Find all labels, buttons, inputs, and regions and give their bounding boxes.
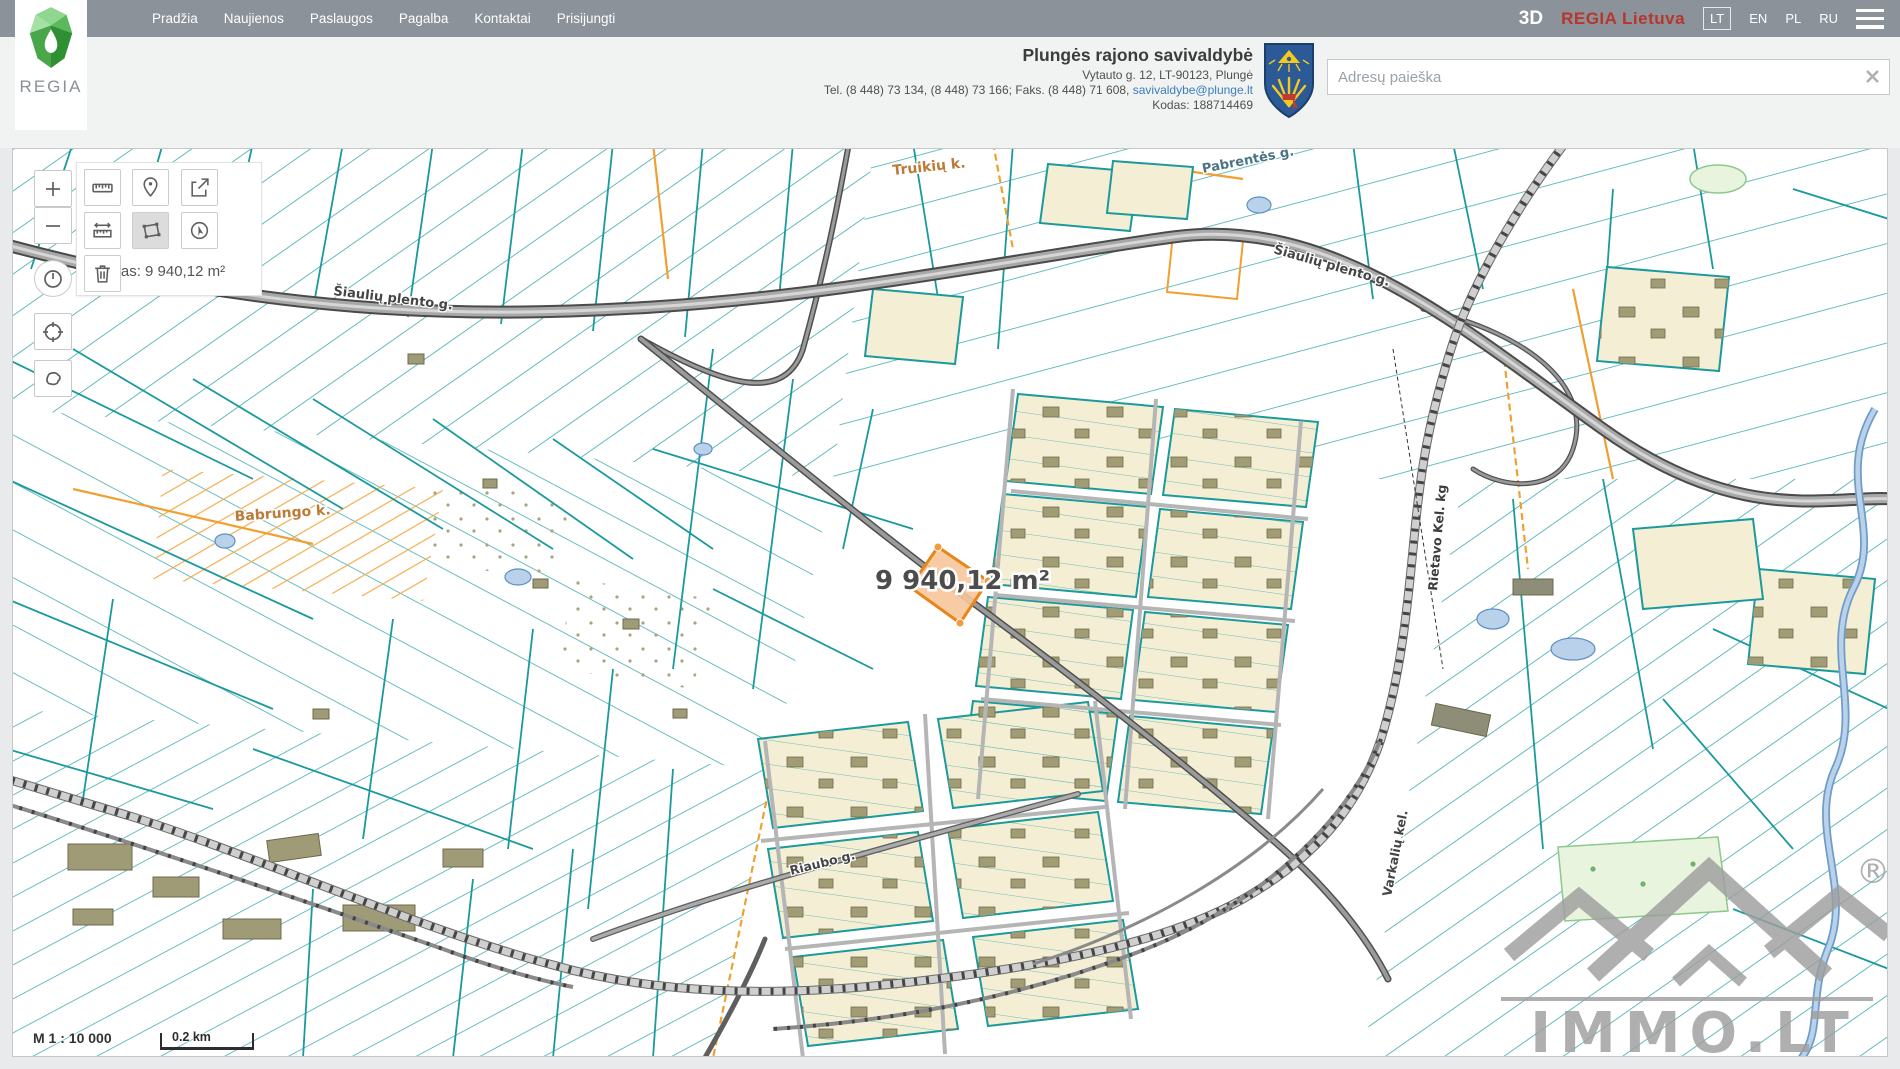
municipality-info: Plungės rajono savivaldybė Vytauto g. 12… xyxy=(824,48,1253,112)
locate-button[interactable] xyxy=(34,313,72,350)
export-icon xyxy=(188,176,211,199)
close-icon[interactable] xyxy=(1865,69,1880,84)
logo-text: REGIA xyxy=(15,77,87,97)
measure-distance-button[interactable] xyxy=(84,212,121,249)
select-region-button[interactable] xyxy=(34,360,72,397)
municipality-address: Vytauto g. 12, LT-90123, Plungė xyxy=(824,68,1253,82)
trash-icon xyxy=(91,262,114,285)
map-scale-bar-label: 0.2 km xyxy=(172,1030,211,1044)
lasso-icon xyxy=(42,368,64,390)
menu-item-prisijungti[interactable]: Prisijungti xyxy=(557,11,616,26)
marker-tool-button[interactable] xyxy=(132,169,169,206)
top-navigation: Pradžia Naujienos Paslaugos Pagalba Kont… xyxy=(0,0,1900,37)
map-scale-ratio: M 1 : 10 000 xyxy=(33,1030,112,1046)
delete-measurement-button[interactable] xyxy=(84,255,121,292)
crosshair-icon xyxy=(42,321,64,343)
measure-tool-panel: Plotas: 9 940,12 m² xyxy=(76,162,262,296)
language-pl[interactable]: PL xyxy=(1785,11,1801,26)
minus-icon xyxy=(42,215,64,237)
regia-logo[interactable]: REGIA xyxy=(15,0,87,130)
menu-item-naujienos[interactable]: Naujienos xyxy=(224,11,284,26)
clock-icon xyxy=(42,268,64,290)
zoom-in-button[interactable] xyxy=(34,170,72,207)
view-3d-button[interactable]: 3D xyxy=(1519,8,1543,30)
map-canvas[interactable]: 9 940,12 m² Truikių k. Babrungo k. Šiaul… xyxy=(13,149,1888,1057)
compass-cursor-icon xyxy=(188,219,211,242)
municipality-code: Kodas: 188714469 xyxy=(824,98,1253,112)
address-search xyxy=(1327,59,1890,95)
plus-icon xyxy=(42,178,64,200)
address-search-input[interactable] xyxy=(1327,59,1890,95)
page-header: Plungės rajono savivaldybė Vytauto g. 12… xyxy=(0,37,1900,148)
language-lt[interactable]: LT xyxy=(1703,7,1731,30)
menu-item-pagalba[interactable]: Pagalba xyxy=(399,11,449,26)
compass-tool-button[interactable] xyxy=(181,212,218,249)
regia-lietuva-link[interactable]: REGIA Lietuva xyxy=(1561,9,1685,29)
map-scale-bar: 0.2 km xyxy=(160,1033,254,1050)
zoom-out-button[interactable] xyxy=(34,207,72,244)
ruler-icon xyxy=(91,176,114,199)
municipality-name: Plungės rajono savivaldybė xyxy=(824,48,1253,62)
area-measure-icon xyxy=(139,219,162,242)
marker-icon xyxy=(139,176,162,199)
history-button[interactable] xyxy=(34,260,72,297)
distance-measure-icon xyxy=(91,219,114,242)
menu-item-pradzia[interactable]: Pradžia xyxy=(152,11,198,26)
coat-of-arms xyxy=(1262,42,1316,120)
main-menu: Pradžia Naujienos Paslaugos Pagalba Kont… xyxy=(152,11,615,26)
language-ru[interactable]: RU xyxy=(1819,11,1838,26)
measure-area-button[interactable] xyxy=(132,212,169,249)
export-tool-button[interactable] xyxy=(181,169,218,206)
language-en[interactable]: EN xyxy=(1749,11,1767,26)
regia-gem-icon xyxy=(22,6,80,70)
measure-tool-button[interactable] xyxy=(84,169,121,206)
menu-item-kontaktai[interactable]: Kontaktai xyxy=(474,11,530,26)
hamburger-icon[interactable] xyxy=(1856,9,1884,29)
municipality-phones: Tel. (8 448) 73 134, (8 448) 73 166; Fak… xyxy=(824,83,1130,97)
map-viewport: 9 940,12 m² Truikių k. Babrungo k. Šiaul… xyxy=(12,148,1888,1057)
municipality-email-link[interactable]: savivaldybe@plunge.lt xyxy=(1133,83,1253,97)
map-label-area: 9 940,12 m² xyxy=(875,566,1050,596)
menu-item-paslaugos[interactable]: Paslaugos xyxy=(310,11,373,26)
